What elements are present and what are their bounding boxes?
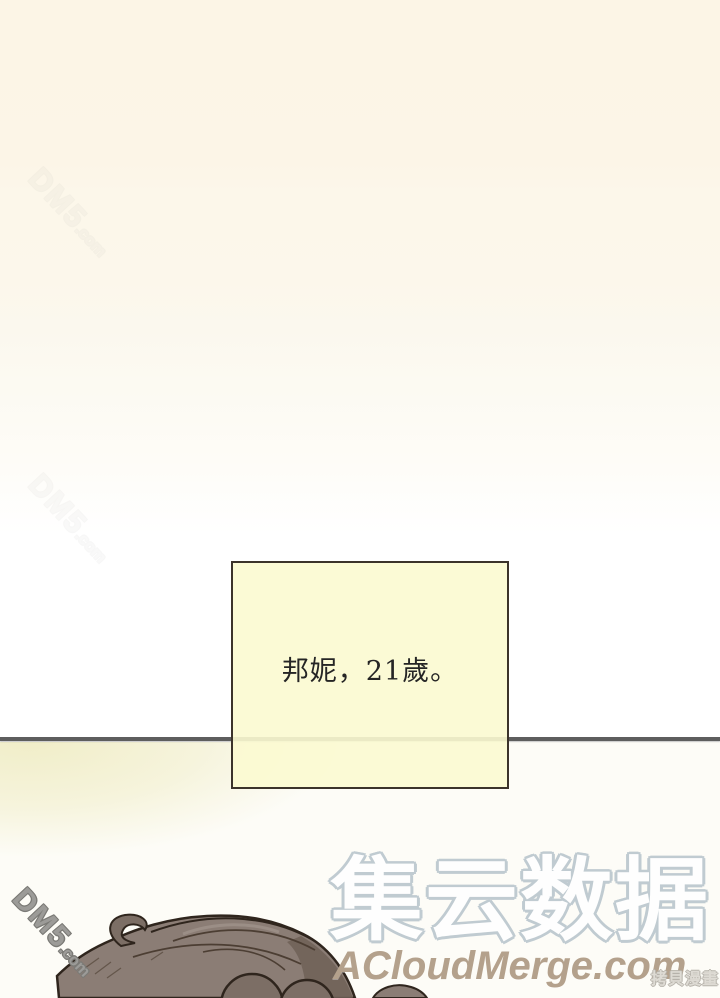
caption-text: 邦妮，21歲。 [282, 649, 458, 688]
brand-watermark-chinese: 集云数据 [330, 856, 710, 946]
corner-watermark: 拷貝漫畫 [651, 972, 719, 988]
brand-watermark-url: ACloudMerge.com [333, 946, 686, 986]
caption-box: 邦妮，21歲。 [231, 561, 509, 789]
